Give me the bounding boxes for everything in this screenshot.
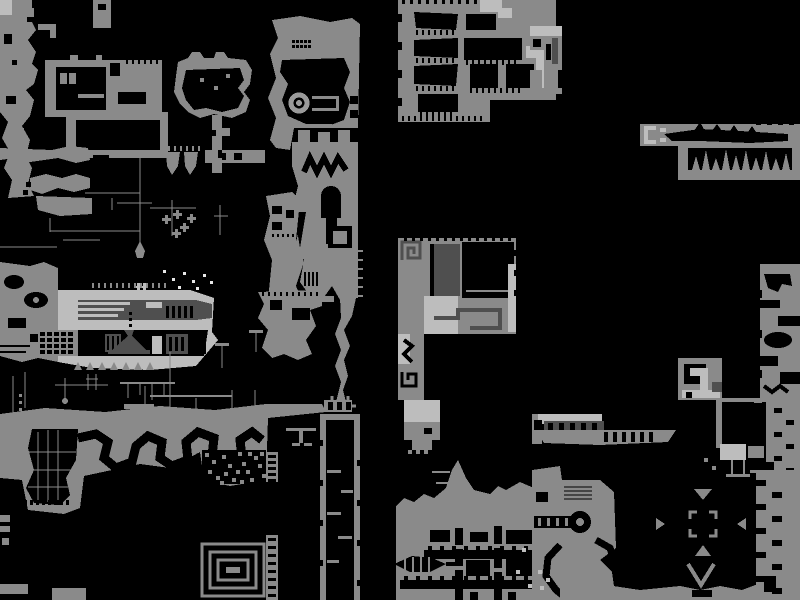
map-shape: [292, 308, 310, 320]
map-shape: [296, 45, 299, 48]
map-shape: [452, 58, 454, 63]
map-shape: [512, 88, 514, 93]
map-shape: [476, 546, 480, 550]
map-shape: [440, 86, 442, 91]
map-shape: [328, 402, 333, 410]
map-shape: [138, 60, 140, 64]
map-shape: [194, 448, 199, 453]
map-shape: [418, 94, 458, 112]
map-shape: [430, 530, 450, 542]
map-shape: [36, 196, 92, 216]
game-screen: [0, 0, 800, 600]
map-shape: [444, 238, 447, 241]
map-shape: [466, 560, 490, 576]
map-shape: [774, 432, 782, 437]
map-shape: [492, 238, 495, 241]
map-shape: [26, 182, 31, 187]
map-shape: [168, 146, 170, 151]
map-shape: [613, 432, 617, 442]
map-shape: [76, 120, 160, 150]
map-shape: [172, 306, 175, 318]
map-shape: [110, 283, 112, 288]
map-shape: [760, 300, 780, 308]
map-shape: [78, 308, 124, 311]
map-shape: [50, 28, 56, 38]
map-shape: [748, 446, 764, 458]
map-shape: [184, 306, 187, 318]
map-shape: [416, 576, 420, 580]
map-shape: [19, 408, 22, 411]
map-shape: [184, 152, 198, 175]
map-shape: [4, 34, 12, 44]
lattice-cell: [61, 338, 66, 342]
speck: [258, 464, 262, 468]
map-shape: [398, 98, 402, 106]
map-shape: [292, 234, 294, 237]
lattice-cell: [54, 332, 59, 336]
map-shape: [478, 60, 480, 65]
map-shape: [218, 150, 222, 158]
map-shape: [428, 546, 432, 550]
speck: [210, 281, 213, 284]
map-shape: [18, 500, 21, 505]
map-shape: [316, 272, 318, 286]
map-shape: [174, 146, 176, 151]
map-shape: [446, 58, 448, 63]
map-shape: [272, 222, 282, 230]
map-shape: [292, 292, 294, 296]
map-shape: [470, 64, 498, 88]
arrow-up-icon: [695, 545, 711, 556]
map-shape: [296, 40, 299, 43]
map-shape: [488, 546, 492, 550]
map-shape: [500, 88, 502, 93]
map-shape: [756, 528, 766, 534]
map-shape: [4, 275, 24, 289]
map-shape: [512, 576, 516, 580]
map-shape: [304, 443, 312, 446]
map-shape: [420, 238, 423, 241]
map-shape: [398, 42, 402, 50]
game-map-canvas: [0, 0, 800, 600]
speck: [250, 478, 254, 482]
map-shape: [169, 337, 172, 351]
map-shape: [337, 402, 342, 410]
lattice-cell: [61, 332, 66, 336]
map-shape: [181, 337, 184, 351]
map-shape: [434, 244, 460, 296]
map-shape: [436, 238, 439, 241]
lattice-cell: [47, 338, 52, 342]
map-shape: [292, 443, 300, 446]
map-shape: [470, 88, 472, 93]
map-shape: [152, 336, 162, 354]
map-shape: [416, 58, 418, 63]
map-shape: [400, 580, 546, 589]
map-shape: [532, 88, 562, 94]
map-shape: [268, 586, 276, 589]
map-shape: [538, 518, 541, 526]
map-shape: [287, 234, 289, 237]
map-shape: [286, 292, 288, 296]
map-shape: [60, 73, 67, 84]
map-shape: [0, 515, 10, 522]
map-shape: [222, 128, 230, 136]
speck: [222, 455, 226, 459]
plus-mark: [175, 229, 178, 238]
speck: [216, 476, 220, 480]
map-shape: [158, 283, 160, 288]
map-shape: [756, 504, 766, 510]
map-shape: [480, 116, 482, 121]
map-shape: [468, 116, 470, 121]
map-shape: [474, 0, 477, 4]
map-shape: [357, 500, 360, 506]
map-shape: [428, 238, 431, 241]
map-shape: [358, 277, 363, 279]
map-shape: [622, 432, 626, 442]
speck: [262, 474, 266, 478]
speck: [163, 270, 166, 273]
map-shape: [484, 60, 486, 65]
map-shape: [452, 546, 456, 550]
map-shape: [488, 88, 490, 93]
map-shape: [258, 290, 322, 360]
map-shape: [418, 0, 421, 4]
lattice-cell: [54, 350, 59, 354]
map-shape: [156, 60, 158, 64]
speck: [224, 472, 228, 476]
map-shape: [144, 60, 146, 64]
speck: [236, 470, 240, 474]
map-shape: [426, 116, 428, 121]
map-shape: [264, 192, 304, 306]
map-shape: [212, 130, 216, 136]
map-shape: [546, 44, 551, 60]
map-shape: [452, 86, 454, 91]
map-shape: [398, 70, 402, 78]
map-shape: [458, 0, 461, 4]
map-shape: [300, 45, 303, 48]
map-shape: [412, 557, 414, 572]
map-shape: [268, 461, 276, 464]
map-shape: [304, 272, 306, 286]
map-shape: [268, 594, 276, 597]
map-shape: [428, 86, 430, 91]
map-shape: [649, 432, 653, 442]
arrow-down-icon: [694, 489, 712, 500]
map-shape: [514, 270, 518, 276]
map-shape: [414, 116, 416, 121]
map-shape: [428, 58, 430, 63]
speck: [178, 286, 181, 289]
map-shape: [0, 22, 38, 198]
map-shape: [500, 238, 503, 241]
map-shape: [778, 120, 783, 125]
map-shape: [98, 150, 100, 154]
map-shape: [42, 500, 45, 505]
map-shape: [320, 440, 323, 446]
map-shape: [565, 518, 568, 526]
map-shape: [166, 306, 169, 318]
map-shape: [466, 60, 468, 65]
map-shape: [104, 283, 106, 288]
map-shape: [358, 286, 363, 288]
map-shape: [268, 570, 276, 573]
map-shape: [110, 63, 120, 76]
map-shape: [12, 60, 17, 65]
lattice-cell: [47, 350, 52, 354]
map-shape: [712, 382, 722, 392]
map-shape: [484, 238, 487, 241]
map-shape: [402, 116, 404, 121]
map-shape: [712, 466, 716, 470]
speck: [546, 578, 550, 582]
map-shape: [118, 92, 146, 104]
map-shape: [94, 150, 96, 154]
map-shape: [424, 428, 432, 434]
map-shape: [726, 474, 750, 477]
map-shape: [412, 440, 432, 450]
map-shape: [320, 480, 323, 486]
map-shape: [560, 584, 758, 600]
map-shape: [308, 40, 311, 43]
map-shape: [277, 234, 279, 237]
map-shape: [462, 116, 464, 121]
lattice-cell: [68, 344, 73, 348]
map-shape: [704, 458, 708, 462]
map-shape: [772, 540, 782, 546]
map-shape: [78, 302, 130, 305]
map-shape: [470, 592, 478, 600]
map-shape: [494, 568, 502, 572]
map-shape: [764, 576, 776, 592]
map-shape: [552, 38, 558, 64]
map-shape: [357, 540, 360, 546]
map-shape: [24, 500, 27, 505]
map-shape: [310, 292, 312, 296]
map-shape: [404, 238, 407, 241]
map-shape: [414, 64, 458, 86]
map-shape: [186, 146, 188, 151]
map-shape: [52, 588, 86, 600]
map-shape: [30, 174, 90, 194]
map-shape: [268, 554, 276, 557]
map-shape: [476, 88, 478, 93]
map-shape: [358, 268, 363, 270]
lattice-cell: [40, 338, 45, 342]
map-shape: [416, 86, 418, 91]
map-shape: [327, 470, 341, 473]
map-shape: [764, 332, 792, 348]
map-shape: [502, 60, 504, 65]
map-shape: [758, 330, 762, 338]
speck: [203, 274, 206, 277]
plus-mark: [176, 210, 179, 219]
map-shape: [112, 336, 114, 350]
plus-mark: [165, 215, 168, 224]
map-shape: [422, 30, 424, 35]
plus-mark: [183, 223, 186, 232]
map-shape: [19, 394, 22, 397]
map-shape: [440, 576, 444, 580]
map-shape: [452, 238, 455, 241]
speck: [516, 570, 520, 574]
map-shape: [0, 0, 12, 16]
map-shape: [631, 432, 635, 442]
map-shape: [640, 432, 644, 442]
map-shape: [686, 392, 692, 398]
map-shape: [335, 298, 356, 402]
map-shape: [129, 312, 132, 315]
speck: [205, 453, 209, 457]
map-shape: [292, 45, 295, 48]
map-shape: [341, 490, 353, 493]
map-shape: [556, 518, 559, 526]
map-shape: [180, 146, 182, 151]
map-shape: [756, 552, 766, 558]
map-shape: [175, 337, 178, 351]
map-shape: [398, 14, 402, 22]
map-shape: [444, 116, 446, 121]
map-shape: [576, 518, 584, 526]
lattice-cell: [61, 344, 66, 348]
map-shape: [559, 423, 564, 431]
speck: [232, 478, 236, 482]
map-shape: [604, 432, 608, 442]
map-shape: [547, 518, 550, 526]
map-shape: [268, 562, 276, 565]
map-shape: [774, 408, 782, 413]
map-shape: [327, 560, 339, 563]
speck: [522, 548, 526, 552]
map-shape: [286, 428, 316, 431]
map-shape: [508, 592, 516, 600]
map-shape: [764, 386, 788, 392]
map-shape: [215, 343, 229, 346]
speck: [246, 470, 250, 474]
speck: [208, 470, 212, 474]
map-shape: [102, 150, 104, 154]
map-shape: [488, 576, 492, 580]
map-shape: [482, 88, 484, 93]
map-shape: [434, 86, 436, 91]
map-shape: [508, 60, 510, 65]
map-shape: [268, 538, 276, 541]
map-shape: [350, 96, 358, 104]
map-shape: [129, 318, 132, 321]
map-shape: [408, 116, 410, 121]
map-shape: [414, 12, 458, 30]
map-shape: [404, 422, 440, 440]
map-shape: [468, 238, 471, 241]
map-shape: [536, 492, 548, 502]
map-shape: [268, 455, 276, 458]
map-shape: [129, 324, 132, 327]
map-shape: [767, 120, 772, 125]
map-shape: [534, 420, 542, 430]
map-shape: [446, 30, 448, 35]
map-shape: [308, 272, 310, 286]
map-shape: [304, 40, 307, 43]
lattice-cell: [40, 350, 45, 354]
map-shape: [182, 68, 244, 112]
map-shape: [198, 146, 200, 151]
map-shape: [404, 400, 440, 422]
map-shape: [412, 238, 415, 241]
lattice-cell: [40, 344, 45, 348]
map-shape: [0, 584, 28, 594]
map-shape: [346, 402, 351, 410]
lattice-cell: [68, 332, 73, 336]
map-shape: [358, 295, 363, 297]
map-shape: [200, 78, 204, 82]
map-shape: [23, 190, 28, 195]
map-shape: [778, 316, 800, 326]
map-shape: [234, 153, 242, 160]
map-shape: [282, 234, 284, 237]
map-shape: [466, 0, 469, 4]
map-shape: [432, 116, 434, 121]
map-shape: [500, 546, 504, 550]
lattice-cell: [68, 350, 73, 354]
map-shape: [506, 530, 532, 544]
map-shape: [692, 590, 712, 597]
map-shape: [452, 576, 456, 580]
map-shape: [326, 420, 354, 600]
target-reticle: [690, 529, 697, 536]
v-marker: [688, 564, 714, 585]
map-shape: [128, 283, 130, 288]
map-shape: [476, 576, 480, 580]
map-shape: [270, 300, 282, 310]
lattice-cell: [61, 350, 66, 354]
map-shape: [720, 444, 746, 460]
map-shape: [152, 283, 154, 288]
map-shape: [514, 250, 518, 256]
map-shape: [304, 45, 307, 48]
lattice-cell: [54, 338, 59, 342]
speck: [220, 481, 224, 485]
map-shape: [268, 546, 276, 549]
droplet-landmark: [135, 241, 145, 258]
map-shape: [470, 532, 488, 542]
map-shape: [274, 292, 276, 296]
arrow-right-icon: [656, 518, 665, 530]
map-shape: [774, 456, 782, 461]
map-shape: [438, 116, 440, 121]
map-shape: [69, 73, 76, 84]
map-shape: [496, 60, 498, 65]
map-shape: [268, 479, 276, 482]
map-shape: [540, 0, 556, 30]
map-shape: [358, 250, 363, 252]
map-shape: [428, 30, 430, 35]
map-shape: [93, 155, 109, 171]
map-shape: [78, 314, 118, 317]
map-shape: [272, 234, 274, 237]
map-shape: [122, 283, 124, 288]
map-shape: [166, 152, 180, 175]
map-shape: [333, 231, 347, 244]
map-shape: [108, 350, 150, 354]
map-shape: [192, 336, 206, 354]
speck: [248, 452, 252, 456]
map-shape: [338, 130, 350, 144]
map-shape: [434, 30, 436, 35]
map-shape: [424, 450, 428, 454]
map-shape: [320, 520, 323, 526]
